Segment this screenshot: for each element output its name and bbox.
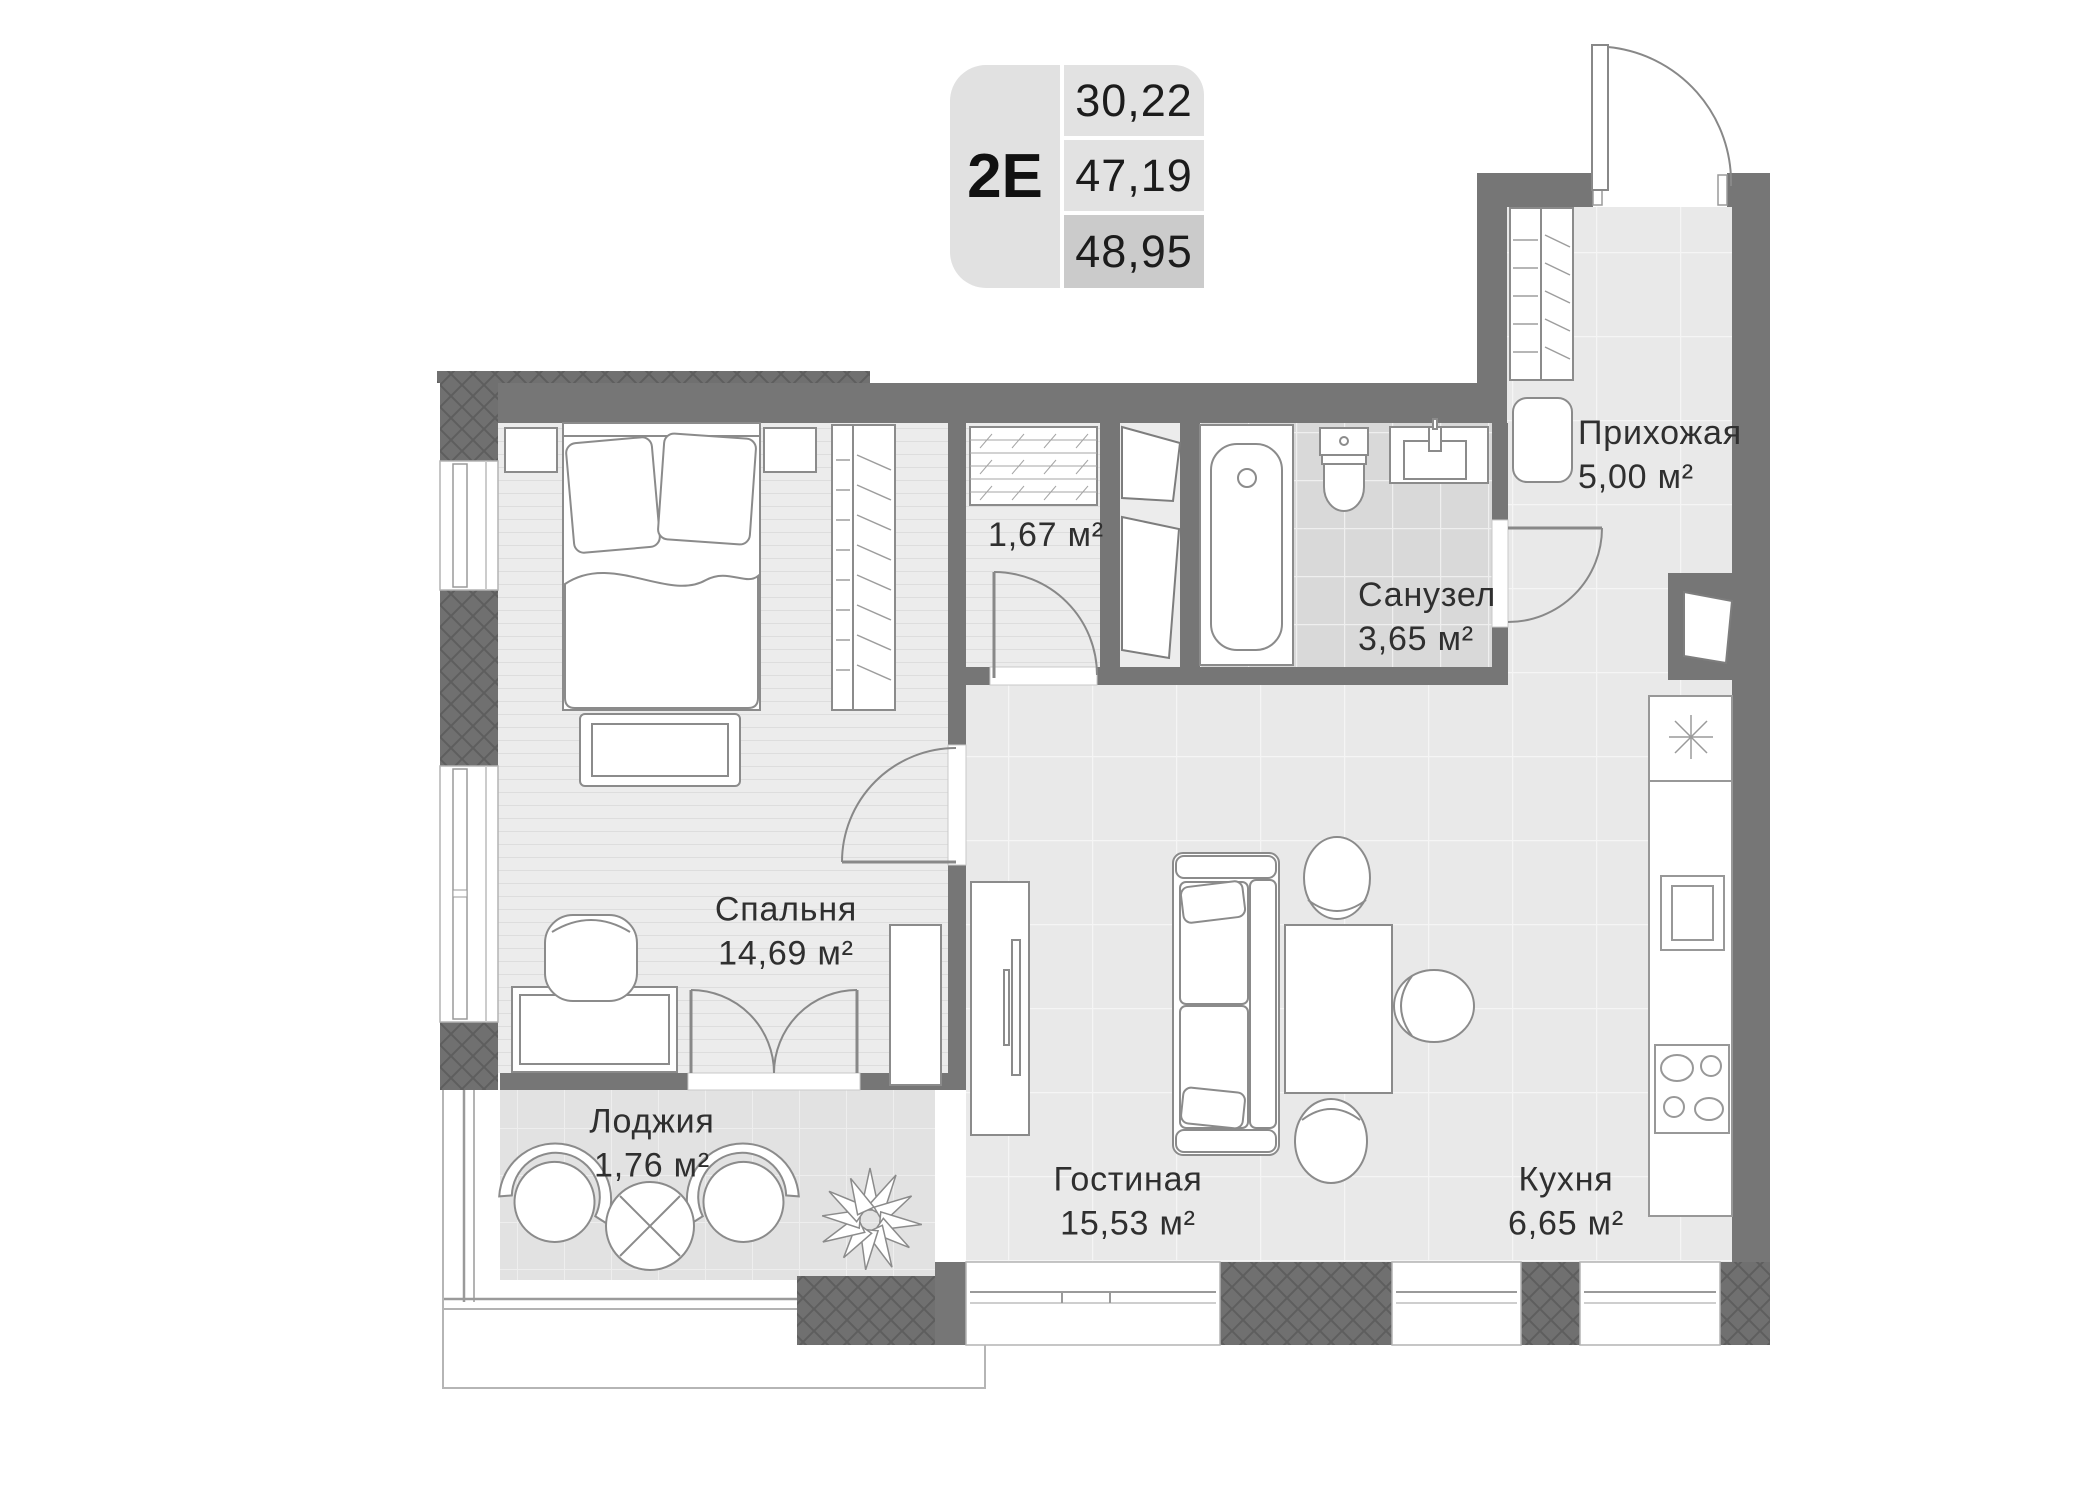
kitchen-furniture — [1649, 696, 1732, 1216]
room-name: Лоджия — [589, 1100, 714, 1144]
dining-chair-bottom — [1295, 1099, 1367, 1183]
room-label-loggia: Лоджия 1,76 м² — [589, 1100, 714, 1187]
entrance-left-wall — [1477, 173, 1507, 423]
loggia-corner-block — [797, 1276, 935, 1345]
desk-chair — [545, 915, 637, 1001]
double-bed — [563, 423, 760, 710]
room-name: Спальня — [715, 888, 857, 932]
closet-shelving — [970, 427, 1097, 505]
bottom-pier-1 — [935, 1262, 966, 1345]
closet-bottom-wall-left — [948, 667, 990, 685]
shaft-right-wall — [1180, 423, 1200, 685]
loggia-wall-left — [500, 1073, 688, 1090]
tv-unit — [971, 882, 1029, 1135]
entrance-top-wall — [1477, 173, 1593, 207]
top-wall — [440, 383, 1507, 423]
dining-chair-right — [1394, 970, 1474, 1042]
bed-bench — [580, 714, 740, 786]
right-wall — [1732, 173, 1770, 1345]
bathroom-sink — [1390, 419, 1488, 483]
shoe-cabinet — [1513, 398, 1572, 482]
bedroom-partition-lower — [948, 865, 966, 1090]
room-label-hallway: Прихожая 5,00 м² — [1578, 412, 1742, 499]
entrance-door — [1592, 45, 1731, 207]
dining-table — [1285, 925, 1392, 1093]
bottom-pier-3 — [1521, 1262, 1580, 1345]
nightstand-left — [505, 428, 557, 472]
stove — [1655, 1045, 1729, 1133]
bedroom-wardrobe — [832, 425, 895, 710]
bathtub — [1200, 425, 1293, 665]
room-name: Кухня — [1508, 1158, 1624, 1202]
room-label-closet: 1,67 м² — [988, 514, 1104, 558]
room-label-bedroom: Спальня 14,69 м² — [715, 888, 857, 975]
room-name: Гостиная — [1053, 1158, 1202, 1202]
toilet — [1320, 428, 1368, 511]
hallway-furniture — [1510, 208, 1573, 482]
legend-areas: 30,22 47,19 48,95 — [1064, 65, 1204, 288]
left-pier-3 — [440, 1022, 498, 1090]
bedroom-partition-upper — [948, 423, 966, 745]
room-area: 5,00 м² — [1578, 456, 1742, 500]
legend-area-2: 47,19 — [1064, 140, 1204, 211]
bathroom-right-wall-upper — [1492, 423, 1508, 520]
fridge-symbol — [1669, 715, 1713, 759]
bathroom-bottom-wall — [1097, 667, 1492, 685]
top-hatch-strip — [437, 371, 870, 383]
room-area: 15,53 м² — [1053, 1202, 1202, 1246]
floor-plan: 2E 30,22 47,19 48,95 Прихожая 5,00 м² Са… — [0, 0, 2100, 1485]
legend-area-1: 30,22 — [1064, 65, 1204, 136]
entrance-wardrobe — [1510, 208, 1573, 380]
left-window-2 — [440, 766, 498, 1022]
room-label-bathroom: Санузел 3,65 м² — [1358, 574, 1496, 661]
unit-code: 2E — [950, 65, 1060, 288]
legend: 2E 30,22 47,19 48,95 — [950, 65, 1204, 288]
bottom-window-3 — [1580, 1262, 1720, 1345]
loggia-table — [606, 1182, 694, 1270]
oven — [1661, 876, 1724, 950]
room-area: 14,69 м² — [715, 932, 857, 976]
kitchen-counter — [1649, 696, 1732, 1216]
room-label-living-room: Гостиная 15,53 м² — [1053, 1158, 1202, 1245]
bottom-pier-4 — [1720, 1262, 1770, 1345]
bedroom-cabinet — [890, 925, 941, 1085]
left-pier-2 — [440, 590, 498, 766]
room-name: Санузел — [1358, 574, 1496, 618]
bottom-window-2 — [1392, 1262, 1521, 1345]
room-area: 1,76 м² — [589, 1144, 714, 1188]
room-area: 1,67 м² — [988, 514, 1104, 558]
room-name: Прихожая — [1578, 412, 1742, 456]
left-window-1 — [440, 461, 498, 590]
sofa — [1173, 853, 1279, 1155]
bottom-pier-2 — [1220, 1262, 1392, 1345]
room-area: 3,65 м² — [1358, 618, 1496, 662]
room-area: 6,65 м² — [1508, 1202, 1624, 1246]
bottom-window-1 — [966, 1262, 1220, 1345]
dining-chair-top — [1304, 837, 1370, 919]
room-label-kitchen: Кухня 6,65 м² — [1508, 1158, 1624, 1245]
nightstand-right — [764, 428, 816, 472]
legend-area-total: 48,95 — [1064, 215, 1204, 288]
left-pier-1 — [440, 383, 498, 461]
